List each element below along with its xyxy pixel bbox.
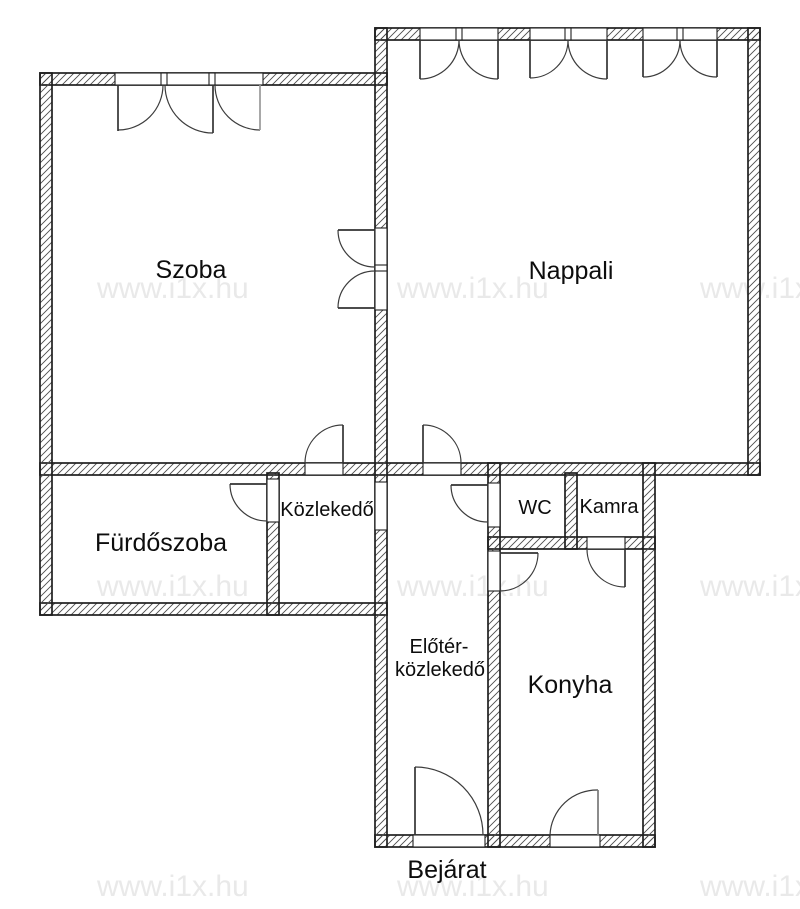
watermark-text: www.i1x.hu bbox=[396, 272, 549, 305]
wall bbox=[40, 73, 52, 615]
wall bbox=[40, 603, 387, 615]
window-mullion bbox=[677, 28, 683, 40]
room-label-kozlekedo: Közlekedő bbox=[280, 499, 373, 521]
wall bbox=[565, 473, 577, 549]
window-mullion bbox=[209, 73, 215, 85]
room-label-szoba: Szoba bbox=[156, 256, 227, 284]
konyha-window-opening bbox=[550, 835, 600, 847]
room-label-konyha: Konyha bbox=[528, 671, 613, 699]
room-label-nappali: Nappali bbox=[529, 257, 614, 285]
szoba-kozlekedo-door-opening bbox=[305, 463, 343, 475]
floorplan-canvas: www.i1x.huwww.i1x.huwww.i1x.huwww.i1x.hu… bbox=[0, 0, 800, 909]
plan-background bbox=[0, 0, 800, 909]
nappali-eloter-door-opening bbox=[423, 463, 461, 475]
bejarat-door-opening bbox=[413, 835, 485, 847]
watermark-text: www.i1x.hu bbox=[96, 570, 249, 603]
room-label-bejarat: Bejárat bbox=[407, 856, 486, 884]
window-mullion bbox=[456, 28, 462, 40]
room-label-eloter-line1: Előtér- bbox=[410, 636, 469, 658]
wc-door-opening bbox=[488, 483, 500, 527]
floor-plan: www.i1x.huwww.i1x.huwww.i1x.huwww.i1x.hu… bbox=[0, 0, 800, 909]
furdoszoba-door-opening bbox=[267, 479, 279, 522]
kozlekedo-eloter-passage bbox=[375, 482, 387, 530]
room-label-furdoszoba: Fürdőszoba bbox=[95, 529, 227, 557]
konyha-door-opening bbox=[488, 551, 500, 591]
wall bbox=[748, 28, 760, 475]
watermark-text: www.i1x.hu bbox=[396, 570, 549, 603]
room-label-eloter-line2: közlekedő bbox=[395, 659, 485, 681]
window-mullion bbox=[565, 28, 571, 40]
szoba-window-opening bbox=[115, 73, 263, 85]
room-label-kamra: Kamra bbox=[580, 496, 640, 518]
kamra-door-opening bbox=[587, 537, 625, 549]
wall bbox=[643, 463, 655, 847]
watermark-text: www.i1x.hu bbox=[96, 870, 249, 903]
watermark-text: www.i1x.hu bbox=[699, 570, 800, 603]
watermark-text: www.i1x.hu bbox=[699, 870, 800, 903]
wall bbox=[375, 28, 387, 847]
window-mullion bbox=[375, 265, 387, 271]
room-label-wc: WC bbox=[518, 497, 551, 519]
window-mullion bbox=[161, 73, 167, 85]
